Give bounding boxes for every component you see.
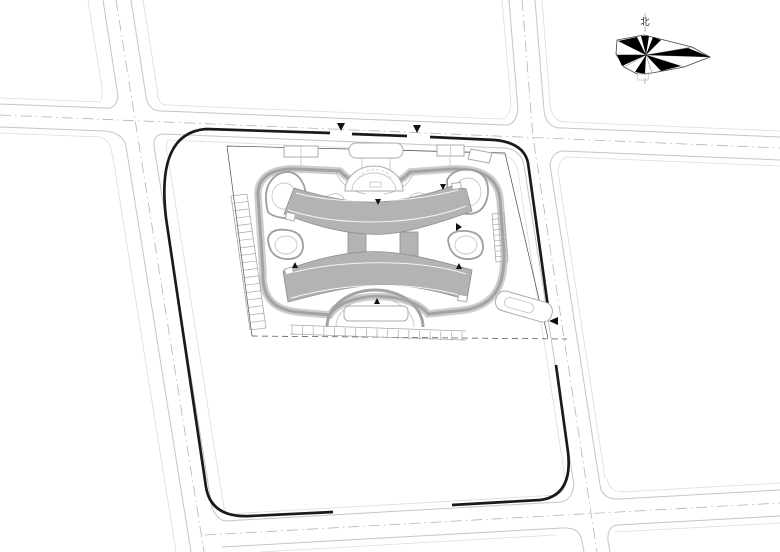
road-south xyxy=(205,483,780,552)
road-south-centerline xyxy=(205,503,780,535)
road-east-diagonal xyxy=(502,0,610,552)
entry-plaza-north xyxy=(345,166,403,191)
north-compass: 北 xyxy=(616,13,710,86)
pod-southeast xyxy=(448,231,483,259)
road-west-centerline xyxy=(116,0,204,552)
entrance-arrow-north-2 xyxy=(413,125,421,133)
pod-southwest xyxy=(268,230,303,259)
landscape-curves xyxy=(316,172,438,314)
parking-south xyxy=(290,325,466,341)
north-label: 北 xyxy=(640,17,650,28)
site-plan-canvas: 北 xyxy=(0,0,780,552)
site-plan-page: 北 xyxy=(0,0,780,552)
building xyxy=(283,182,472,302)
